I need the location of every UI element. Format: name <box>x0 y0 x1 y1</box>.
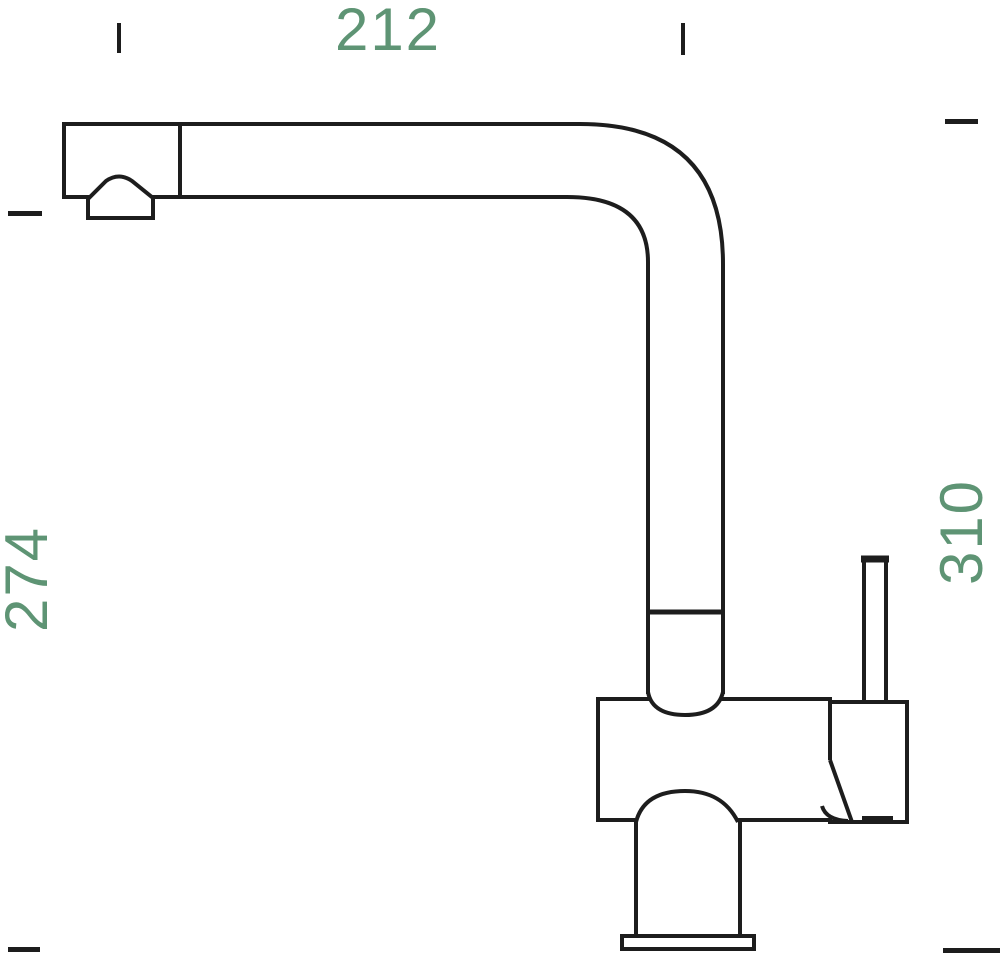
dimension-drawing-page: 212 274 310 <box>0 0 1000 953</box>
dash-bottom-right <box>943 948 1000 953</box>
riser-body-flare <box>648 692 723 715</box>
column-sides <box>636 818 740 934</box>
faucet-body <box>596 697 832 822</box>
dimension-marks <box>8 23 1000 953</box>
dash-bottom-left <box>8 947 40 952</box>
handle-lever-rod <box>864 558 886 702</box>
aerator-nozzle <box>88 177 153 219</box>
handle-mount-seal-mark <box>862 816 893 824</box>
handle-pivot-diagonal <box>830 760 852 822</box>
tick-top-right <box>681 23 685 55</box>
dimension-label-height-right: 310 <box>932 479 992 585</box>
tick-top-left <box>117 23 121 53</box>
base-plate <box>622 936 754 949</box>
dash-left-spout-level <box>8 211 42 216</box>
dash-right-top-level <box>945 119 978 124</box>
mounting-base <box>622 818 754 949</box>
faucet-drawing <box>0 0 1000 953</box>
handle-assembly <box>822 558 909 824</box>
base-dome-arc <box>636 791 738 822</box>
spout-arm-inner-outline <box>182 197 648 694</box>
dimension-label-height-left: 274 <box>0 526 57 632</box>
dimension-label-width: 212 <box>335 0 441 60</box>
